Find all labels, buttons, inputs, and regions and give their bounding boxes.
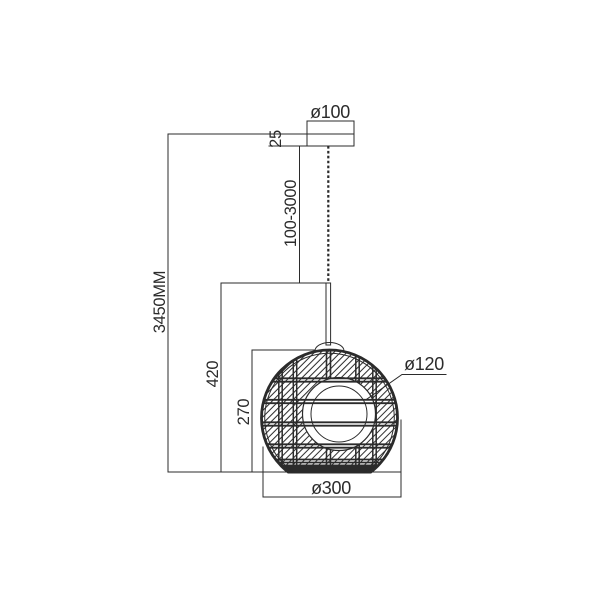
- dim-suspension: 100-3000: [282, 146, 300, 283]
- dim-total-height: 3450MM: [151, 134, 169, 472]
- dim-shade-height-label: 270: [235, 399, 253, 426]
- rattan-shade: [258, 283, 402, 486]
- dim-total-height-label: 3450MM: [151, 271, 169, 333]
- dim-canopy-diameter-label: ø100: [310, 102, 350, 122]
- dim-shade-diameter-label: ø300: [311, 478, 351, 498]
- dim-suspension-label: 100-3000: [282, 180, 300, 247]
- dim-opening-label: ø120: [404, 354, 444, 374]
- dim-canopy-height-label: 25: [267, 130, 285, 148]
- dim-drop-label: 420: [204, 361, 222, 388]
- shade-weave: [258, 346, 402, 476]
- pendant-lamp-drawing: 3450MM 25 100-3000 420 270: [0, 0, 600, 600]
- stem-rod: [326, 283, 331, 345]
- shade-clipped: [258, 346, 402, 486]
- technical-drawing-canvas: 3450MM 25 100-3000 420 270: [0, 0, 600, 600]
- opening-outer-circle: [303, 378, 376, 451]
